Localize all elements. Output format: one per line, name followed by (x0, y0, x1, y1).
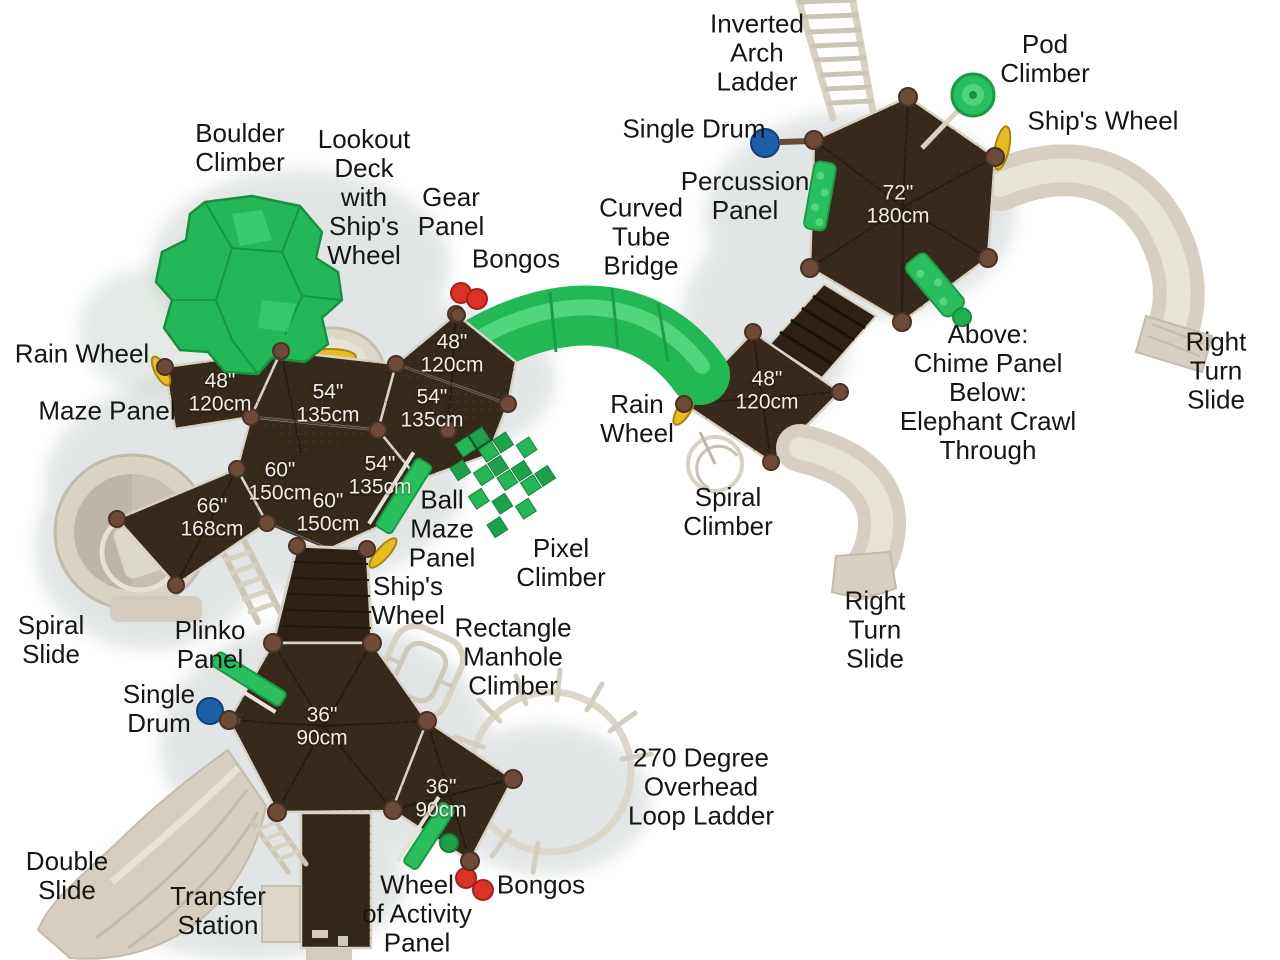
label-double-slide: Double Slide (26, 847, 108, 905)
label-plinko-panel: Plinko Panel (175, 616, 246, 674)
label-pixel-climber: Pixel Climber (516, 534, 606, 592)
label-maze-panel: Maze Panel (38, 396, 175, 425)
label-bongos-top: Bongos (472, 244, 560, 273)
deck-label-36-hex: 36" 90cm (296, 704, 347, 749)
label-ships-wheel-mid: Ship's Wheel (371, 572, 445, 630)
label-wheel-of-activity: Wheel of Activity Panel (362, 870, 472, 957)
label-curved-tube-bridge: Curved Tube Bridge (599, 193, 683, 280)
label-rain-wheel-left: Rain Wheel (15, 339, 149, 368)
label-spiral-slide: Spiral Slide (18, 611, 84, 669)
deck-label-60-lower: 60" 150cm (296, 490, 359, 535)
label-inverted-arch-ladder: Inverted Arch Ladder (710, 9, 804, 96)
label-ball-maze-panel: Ball Maze Panel (409, 485, 476, 572)
label-chime-elephant: Above: Chime Panel Below: Elephant Crawl… (900, 320, 1076, 466)
label-ships-wheel-top: Ship's Wheel (1028, 106, 1179, 135)
right-turn-slide-bottom-item (800, 448, 896, 596)
label-right-turn-slide-bottom: Right Turn Slide (845, 586, 906, 673)
deck-label-54-right: 54" 135cm (400, 386, 463, 431)
label-gear-panel: Gear Panel (418, 183, 485, 241)
label-single-drum-bottom: Single Drum (123, 680, 195, 738)
label-spiral-climber: Spiral Climber (683, 483, 773, 541)
deck-label-48-right: 48" 120cm (735, 368, 798, 413)
label-lookout-deck: Lookout Deck with Ship's Wheel (318, 125, 411, 271)
deck-label-72: 72" 180cm (866, 182, 929, 227)
label-loop-ladder: 270 Degree Overhead Loop Ladder (628, 743, 774, 830)
label-pod-climber: Pod Climber (1000, 30, 1090, 88)
label-percussion-panel: Percussion Panel (681, 167, 810, 225)
label-boulder-climber: Boulder Climber (195, 119, 285, 177)
label-transfer-station: Transfer Station (170, 882, 266, 940)
deck-label-66: 66" 168cm (180, 495, 243, 540)
label-bongos-bottom: Bongos (497, 870, 585, 899)
label-right-turn-slide-top: Right Turn Slide (1186, 327, 1247, 414)
deck-label-48-top: 48" 120cm (420, 331, 483, 376)
deck-label-54-center: 54" 135cm (296, 381, 359, 426)
label-rain-wheel-center: Rain Wheel (600, 390, 674, 448)
deck-label-36-square: 36" 90cm (415, 776, 466, 821)
deck-label-48-left: 48" 120cm (188, 370, 251, 415)
inverted-arch-ladder-item (797, 0, 873, 118)
label-rect-manhole: Rectangle Manhole Climber (454, 613, 571, 700)
playground-top-view: Inverted Arch Ladder Pod Climber Ship's … (0, 0, 1280, 960)
label-single-drum-top: Single Drum (622, 114, 765, 143)
